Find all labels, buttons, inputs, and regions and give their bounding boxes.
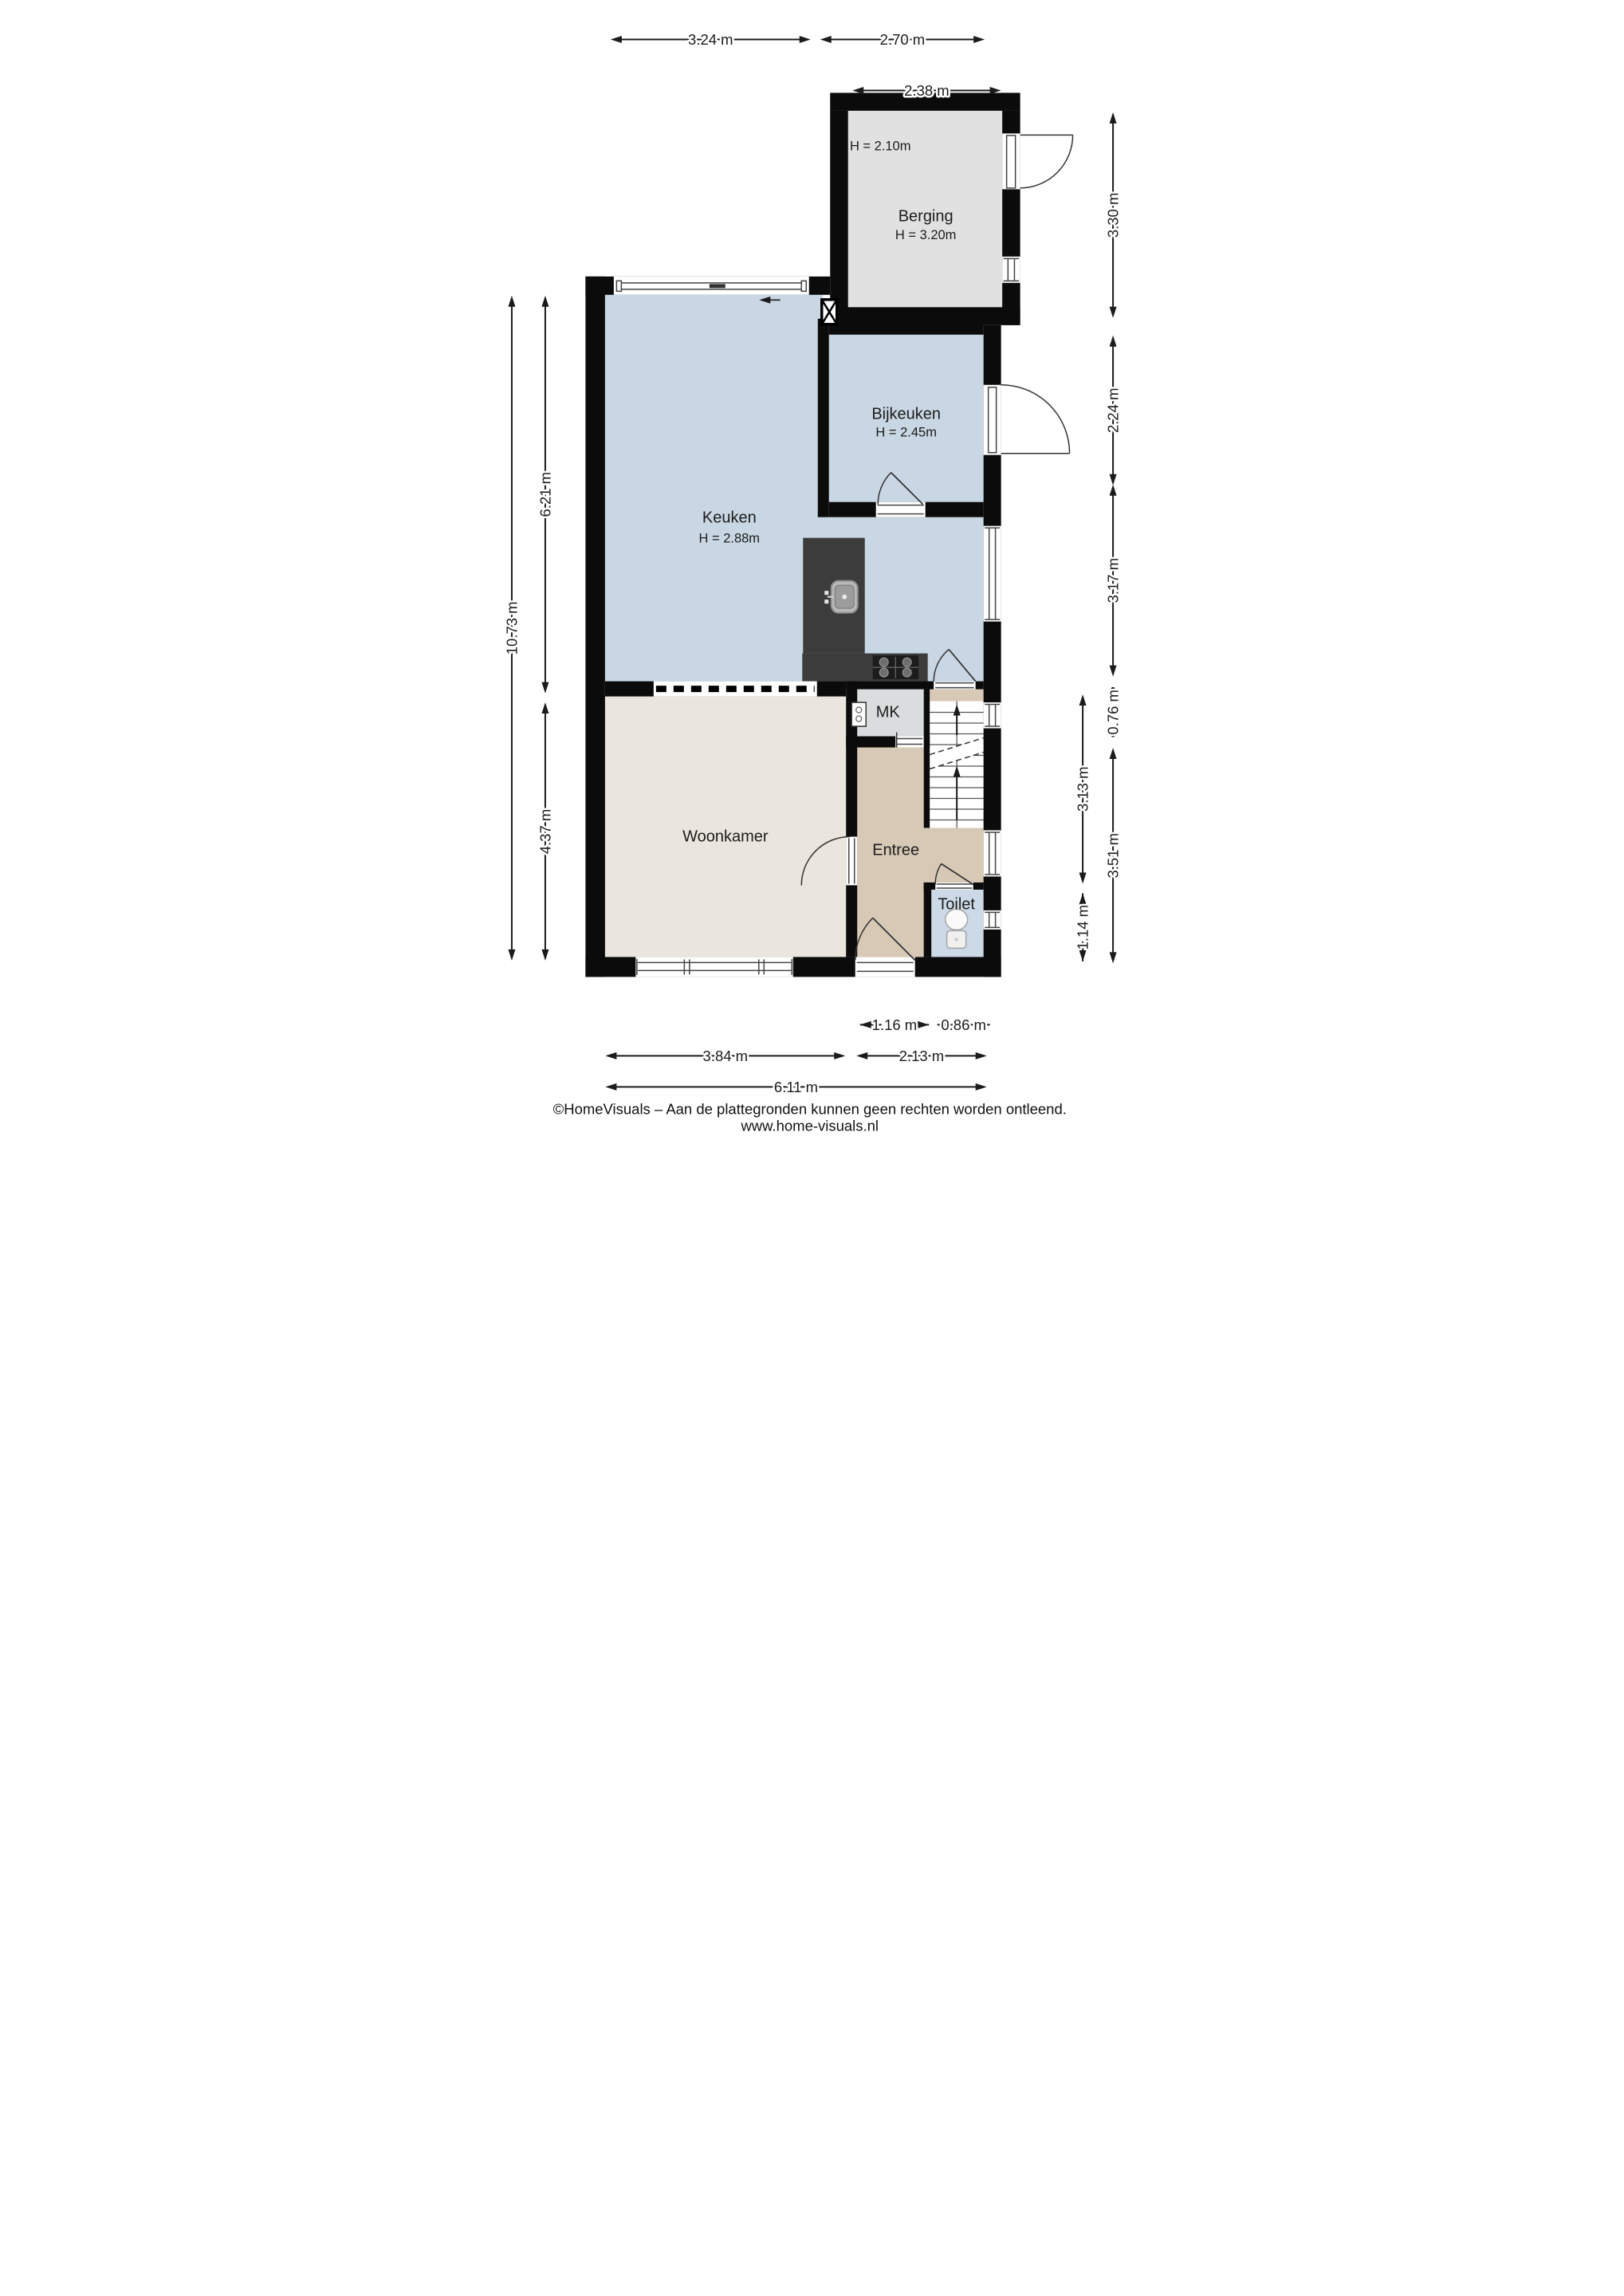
door-berging-leaf	[1006, 136, 1015, 188]
room-height-keuken: H = 2.88m	[698, 532, 760, 546]
dim-label-r351: 3.51 m	[1104, 833, 1121, 879]
sliding-door-jamb	[616, 281, 621, 291]
wall	[923, 682, 929, 828]
room-label-keuken: Keuken	[702, 509, 756, 527]
wall	[830, 111, 847, 319]
dim-label-t238: 2.38 m	[904, 82, 950, 99]
room-label-bijkeuken: Bijkeuken	[871, 406, 941, 423]
dim-label-b611: 6.11 m	[773, 1079, 817, 1095]
room-label-woonkamer: Woonkamer	[682, 828, 769, 845]
meter-box-dial	[855, 716, 861, 721]
dim-label-t324: 3.24 m	[688, 31, 733, 48]
sink-tap	[824, 600, 828, 603]
footer-copyright: ©HomeVisuals – Aan de plattegronden kunn…	[552, 1100, 1066, 1117]
window-keuken	[983, 526, 1001, 622]
dim-label-r114: 1.14 m	[1074, 905, 1091, 950]
wall	[923, 883, 930, 957]
sliding-door-jamb	[801, 281, 806, 291]
floor-plan-svg: H = 2.10mBergingH = 3.20mBijkeukenH = 2.…	[407, 0, 1218, 1147]
room-label-toilet: Toilet	[938, 895, 975, 913]
door-woonkamer	[846, 836, 857, 885]
dim-label-r076: 0.76 m	[1104, 690, 1121, 735]
room-height-berging: H = 3.20m	[895, 228, 956, 242]
door-bijkeuken-ext-leaf	[988, 387, 996, 453]
room-height-bijkeuken: H = 2.45m	[875, 426, 937, 440]
meter-box-dial	[855, 707, 861, 713]
footer-url: www.home-visuals.nl	[740, 1117, 879, 1134]
wall	[817, 319, 828, 517]
sink-drain	[842, 595, 847, 600]
berging-ceiling-note: H = 2.10m	[849, 139, 910, 153]
wall	[828, 319, 983, 335]
dim-label-l1073: 10.73 m	[503, 601, 520, 655]
dim-label-l621: 6.21 m	[537, 472, 553, 517]
hob-burner	[879, 658, 888, 666]
room-label-entree: Entree	[872, 841, 919, 859]
meter-box	[851, 702, 866, 726]
window-woonkamer	[635, 957, 792, 977]
dim-label-r317: 3.17 m	[1104, 558, 1121, 603]
door-bijkeuken-int	[875, 502, 925, 517]
dim-label-r313: 3.13 m	[1074, 766, 1091, 812]
dim-label-l437: 4.37 m	[537, 809, 553, 855]
window-toilet	[983, 910, 1001, 930]
toilet-flush-button	[954, 938, 957, 941]
dim-label-b213: 2.13 m	[899, 1048, 944, 1064]
sink-tap	[824, 591, 828, 595]
dim-label-b086: 0.86 m	[941, 1016, 986, 1033]
hob-burner	[879, 668, 888, 677]
sliding-door-panel	[709, 284, 725, 288]
dim-label-b116: 1.16 m	[871, 1016, 917, 1033]
dim-label-t270: 2.70 m	[879, 31, 925, 48]
hob-burner	[902, 668, 911, 677]
hob-burner	[902, 658, 911, 666]
door-mk	[895, 737, 923, 748]
dim-label-r330: 3.30 m	[1104, 193, 1121, 238]
window-berging	[1002, 257, 1020, 283]
door-front	[855, 957, 914, 977]
window-stairwell	[983, 702, 1001, 728]
room-floor-woonkamer	[604, 697, 845, 957]
dim-label-r224: 2.24 m	[1104, 387, 1121, 433]
dim-label-b384: 3.84 m	[702, 1048, 748, 1064]
stair-top-landing	[930, 690, 983, 702]
floor-plan-page: H = 2.10mBergingH = 3.20mBijkeukenH = 2.…	[407, 0, 1218, 1147]
room-label-mk: MK	[875, 704, 900, 721]
window-entree	[983, 830, 1001, 876]
wall	[585, 277, 604, 977]
room-label-berging: Berging	[898, 207, 953, 225]
